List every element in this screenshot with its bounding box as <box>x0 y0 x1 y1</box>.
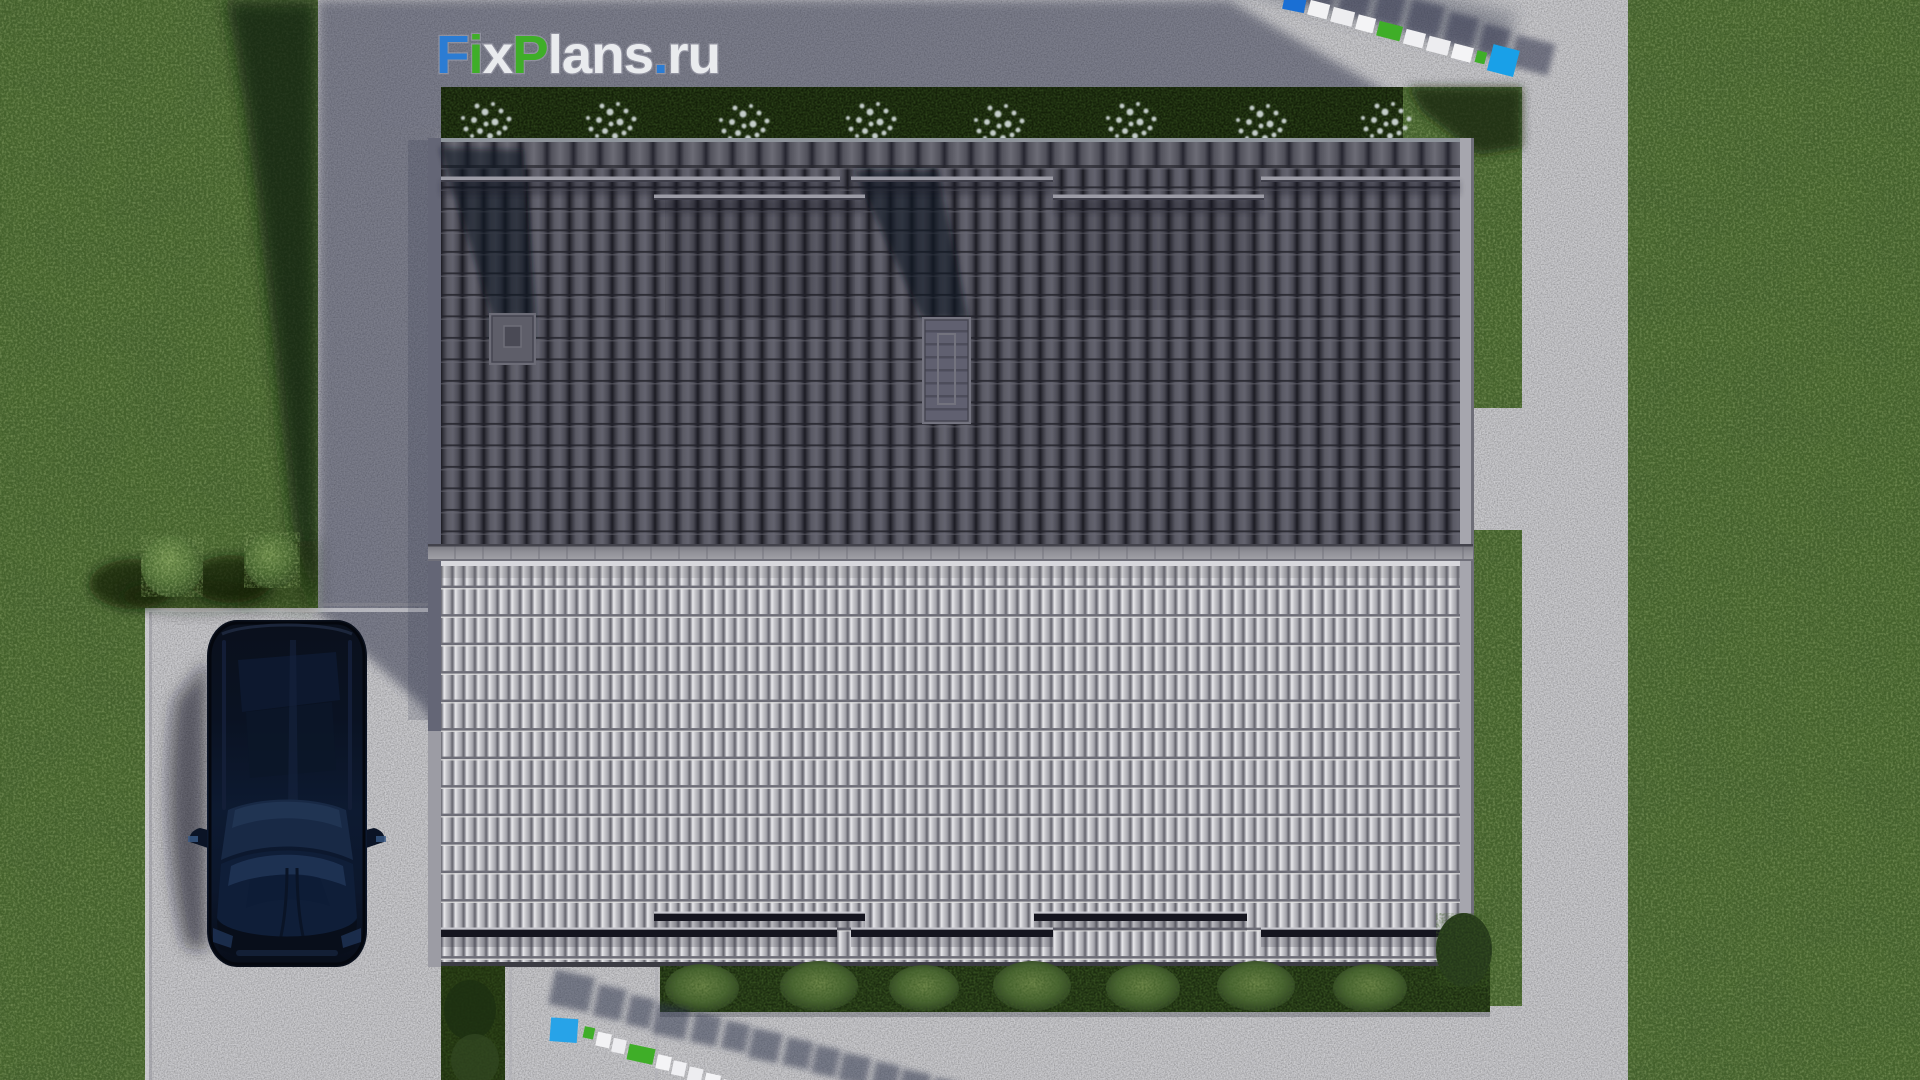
svg-text:FixPlans.ru: FixPlans.ru <box>436 25 720 85</box>
